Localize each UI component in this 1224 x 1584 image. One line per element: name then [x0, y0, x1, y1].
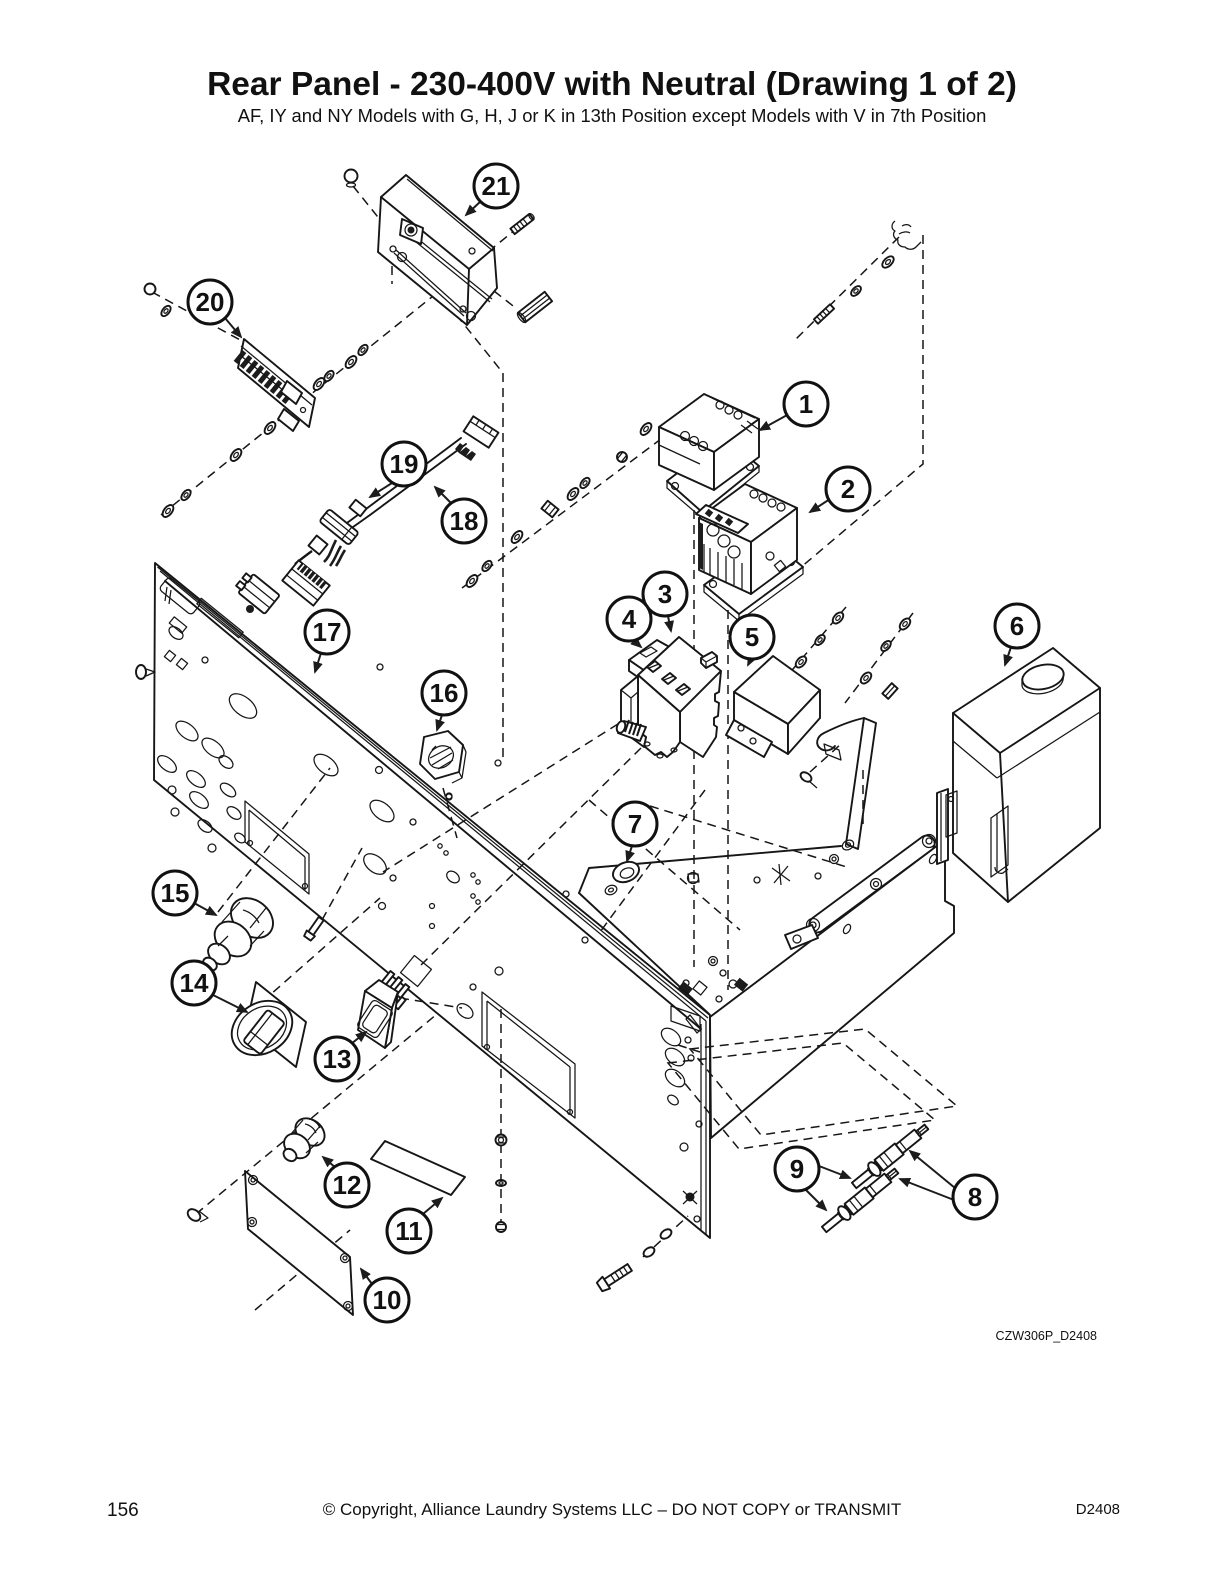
svg-text:15: 15: [161, 878, 190, 908]
svg-text:1: 1: [799, 389, 813, 419]
svg-text:17: 17: [313, 617, 342, 647]
svg-text:2: 2: [841, 474, 855, 504]
svg-text:14: 14: [180, 968, 209, 998]
svg-text:Rear Panel - 230-400V with Neu: Rear Panel - 230-400V with Neutral (Draw…: [207, 66, 1017, 103]
svg-text:© Copyright, Alliance Laundry: © Copyright, Alliance Laundry Systems LL…: [323, 1500, 901, 1519]
svg-text:5: 5: [745, 622, 759, 652]
svg-text:21: 21: [482, 171, 511, 201]
svg-text:13: 13: [323, 1044, 352, 1074]
svg-text:6: 6: [1010, 611, 1024, 641]
svg-text:3: 3: [658, 579, 672, 609]
svg-text:16: 16: [430, 678, 459, 708]
svg-text:7: 7: [628, 809, 642, 839]
svg-text:156: 156: [107, 1500, 139, 1521]
svg-text:CZW306P_D2408: CZW306P_D2408: [996, 1329, 1097, 1343]
svg-text:10: 10: [373, 1285, 402, 1315]
svg-text:18: 18: [450, 506, 479, 536]
svg-text:8: 8: [968, 1182, 982, 1212]
svg-text:19: 19: [390, 449, 419, 479]
svg-text:11: 11: [395, 1216, 423, 1246]
svg-text:12: 12: [333, 1170, 362, 1200]
svg-text:9: 9: [790, 1154, 804, 1184]
svg-text:D2408: D2408: [1076, 1501, 1120, 1518]
svg-text:AF, IY and NY Models with G, H: AF, IY and NY Models with G, H, J or K i…: [238, 105, 987, 126]
svg-text:20: 20: [196, 287, 225, 317]
svg-text:4: 4: [622, 604, 637, 634]
